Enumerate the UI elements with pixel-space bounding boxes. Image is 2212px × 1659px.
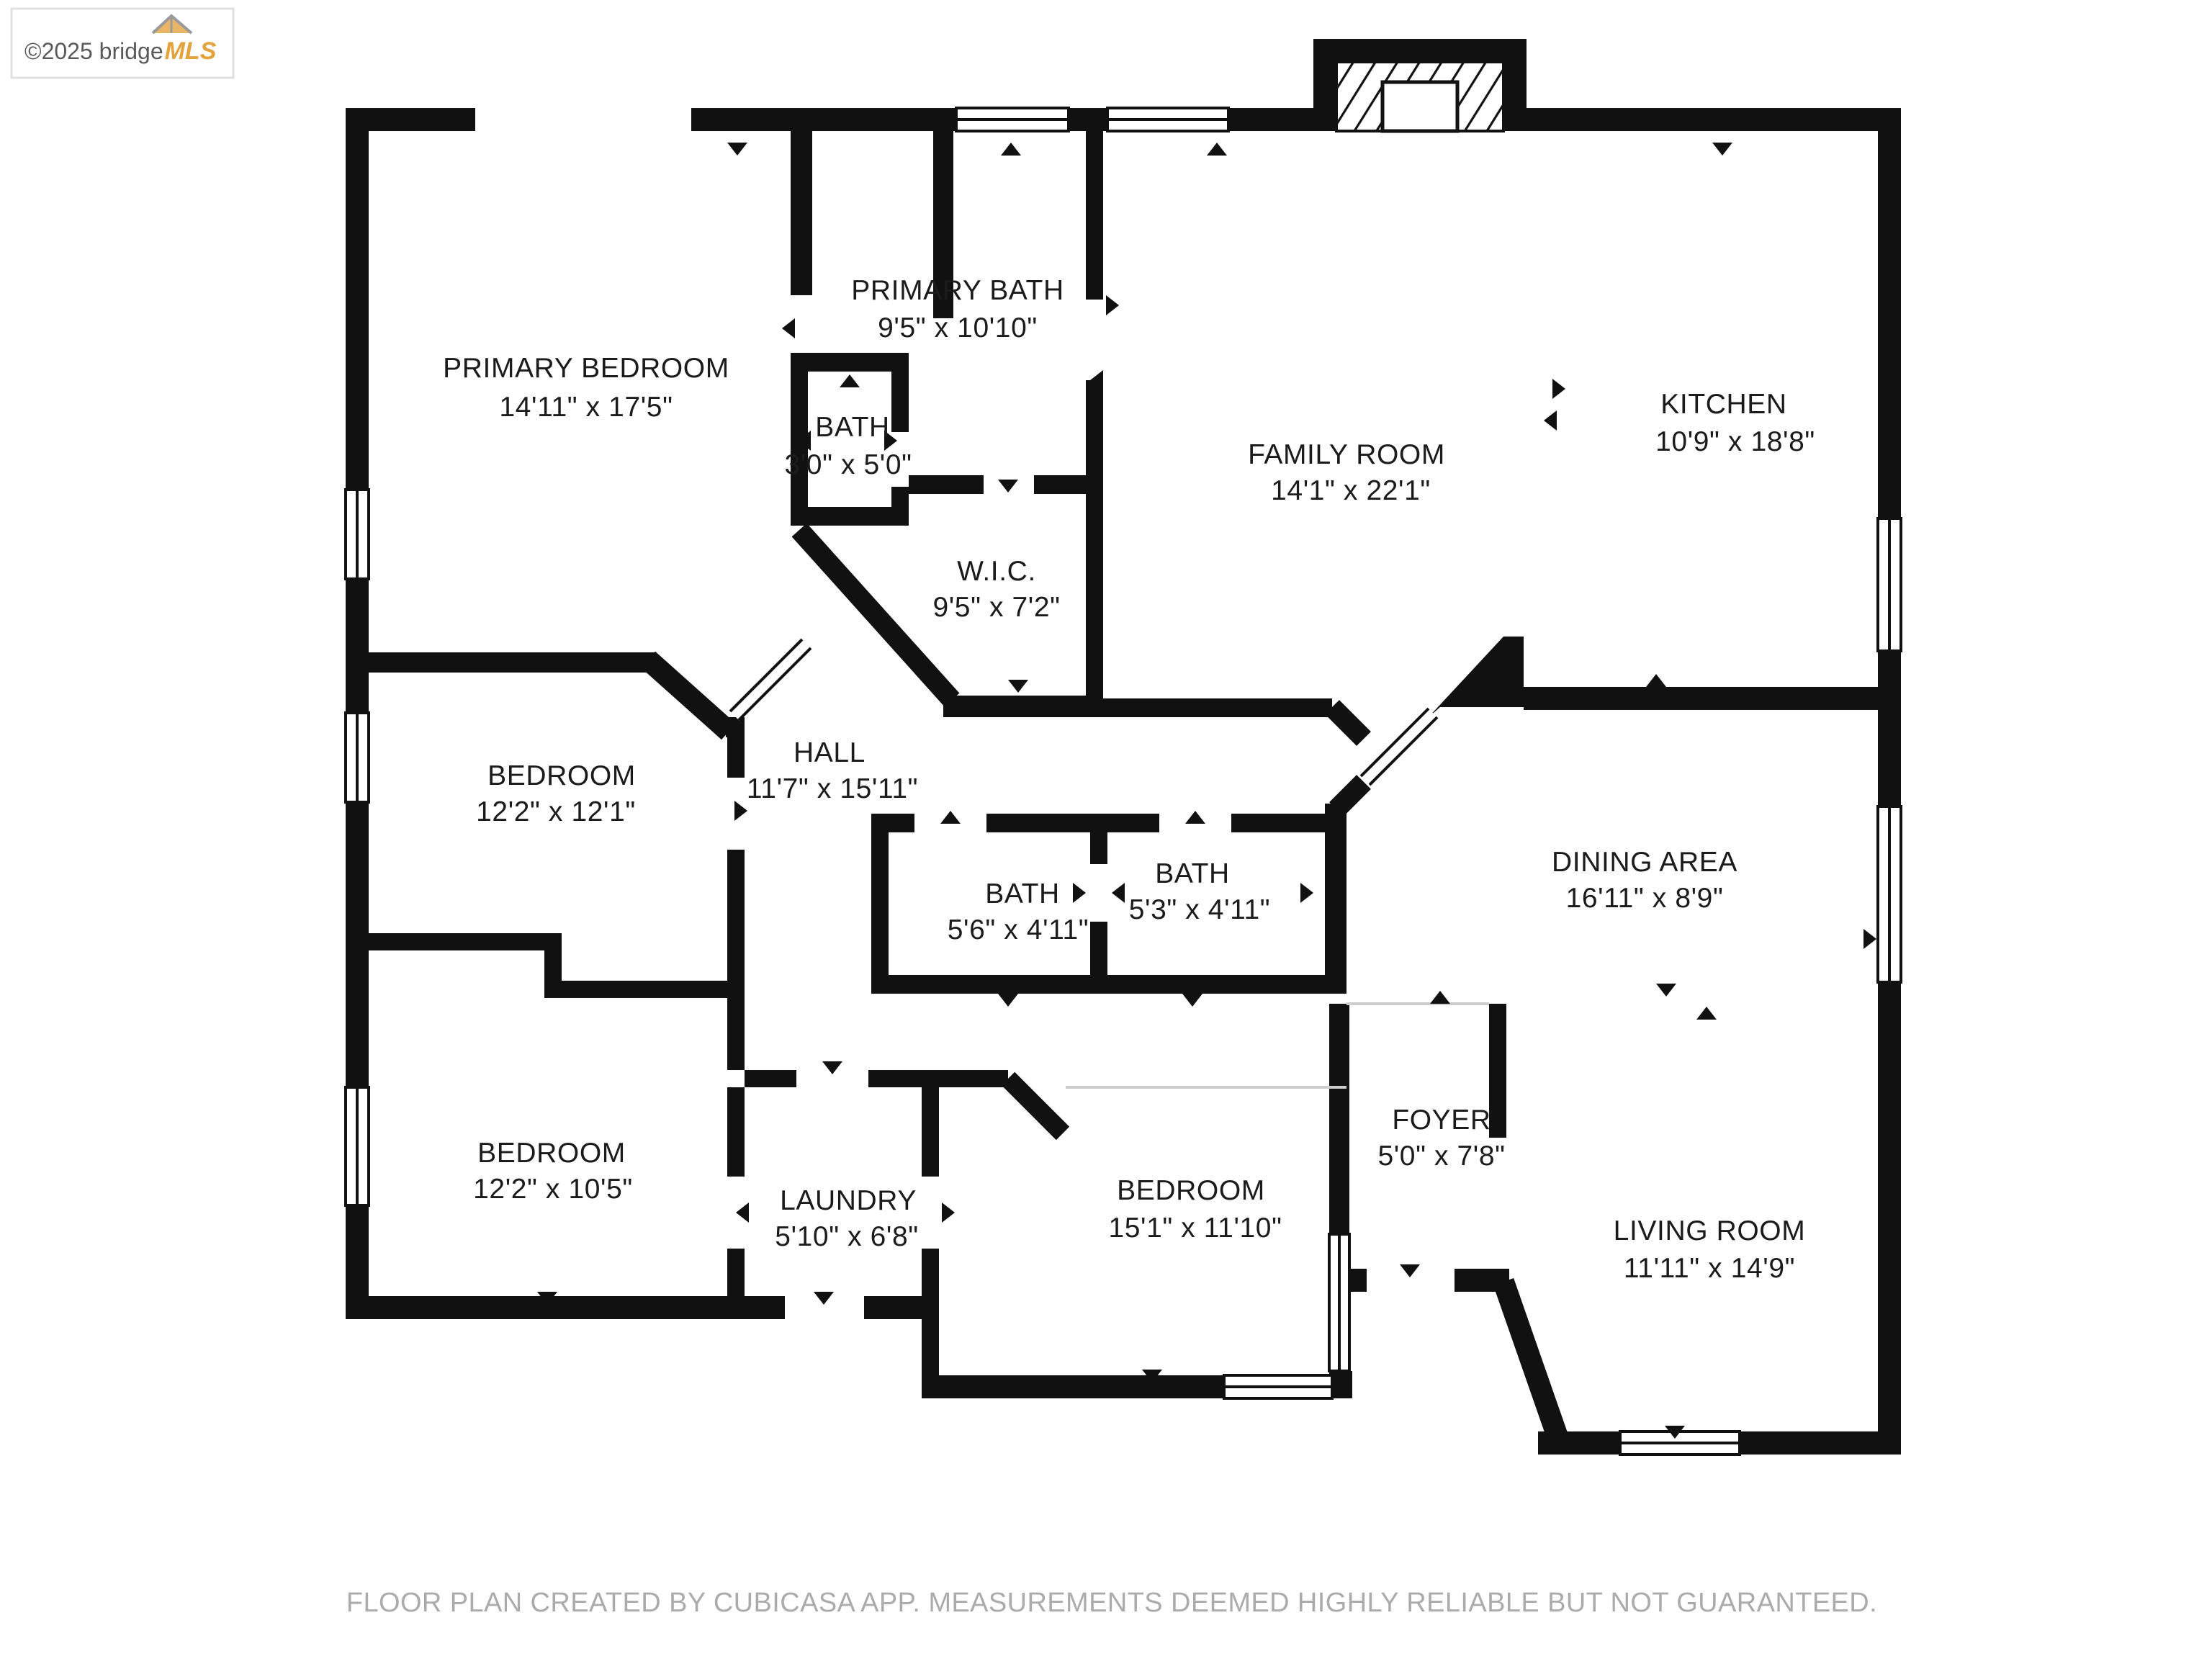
room-name-kitchen: KITCHEN (1660, 389, 1786, 420)
room-dims-foyer: 5'0" x 7'8" (1377, 1141, 1505, 1172)
room-name-bedroom-middle: BEDROOM (1117, 1175, 1265, 1206)
room-name-bedroom-lower: BEDROOM (477, 1138, 626, 1169)
room-dims-dining-area: 16'11" x 8'9" (1566, 883, 1724, 914)
room-name-bedroom-upper: BEDROOM (487, 760, 636, 791)
room-name-bath-1: BATH (985, 878, 1060, 909)
room-name-laundry: LAUNDRY (780, 1185, 917, 1216)
room-dims-bath-2: 5'3" x 4'11" (1129, 894, 1271, 925)
room-name-living-room: LIVING ROOM (1614, 1215, 1806, 1246)
window-icon (1620, 1431, 1740, 1455)
window-icon (346, 713, 369, 802)
room-dims-bath-1: 5'6" x 4'11" (948, 914, 1089, 945)
room-dims-kitchen: 10'9" x 18'8" (1655, 426, 1815, 457)
room-dims-family-room: 14'1" x 22'1" (1271, 475, 1431, 506)
room-name-bath-small: BATH (815, 412, 890, 443)
room-dims-hall: 11'7" x 15'11" (747, 773, 918, 804)
window-icon (1878, 806, 1901, 982)
room-dims-living-room: 11'11" x 14'9" (1624, 1253, 1795, 1284)
room-dims-primary-bedroom: 14'11" x 17'5" (499, 392, 673, 423)
room-name-wic: W.I.C. (957, 556, 1036, 587)
window-icon (1107, 108, 1228, 131)
bridgemls-logo: ©2025 bridgeMLS (12, 9, 233, 78)
room-name-foyer: FOYER (1392, 1105, 1491, 1136)
footer-disclaimer: FLOOR PLAN CREATED BY CUBICASA APP. MEAS… (346, 1588, 1877, 1618)
logo-copyright-text: ©2025 bridge (24, 38, 163, 64)
window-icon (1329, 1234, 1349, 1371)
room-name-dining-area: DINING AREA (1552, 847, 1737, 878)
window-icon (1878, 518, 1901, 651)
room-name-primary-bath: PRIMARY BATH (851, 275, 1064, 306)
room-dims-wic: 9'5" x 7'2" (932, 592, 1060, 623)
room-dims-bedroom-lower: 12'2" x 10'5" (473, 1174, 633, 1205)
room-name-bath-2: BATH (1155, 858, 1230, 889)
room-dims-bedroom-middle: 15'1" x 11'10" (1108, 1213, 1282, 1244)
floor-plan-svg: PRIMARY BEDROOM 14'11" x 17'5" PRIMARY B… (0, 0, 2212, 1659)
fireplace-icon (1336, 62, 1503, 131)
room-dims-bath-small: 3'0" x 5'0" (784, 449, 912, 480)
room-dims-primary-bath: 9'5" x 10'10" (878, 313, 1038, 343)
window-icon (956, 108, 1069, 131)
room-name-primary-bedroom: PRIMARY BEDROOM (443, 353, 729, 384)
svg-text:©2025 bridgeMLS: ©2025 bridgeMLS (24, 37, 217, 65)
room-name-hall: HALL (793, 737, 866, 768)
window-icon (346, 490, 369, 579)
room-name-family-room: FAMILY ROOM (1248, 439, 1445, 470)
room-dims-laundry: 5'10" x 6'8" (775, 1221, 918, 1252)
room-dims-bedroom-upper: 12'2" x 12'1" (476, 796, 636, 827)
floor-plan-page: PRIMARY BEDROOM 14'11" x 17'5" PRIMARY B… (0, 0, 2212, 1659)
window-icon (1224, 1375, 1332, 1398)
logo-brand-text: MLS (165, 37, 217, 65)
window-icon (346, 1087, 369, 1205)
